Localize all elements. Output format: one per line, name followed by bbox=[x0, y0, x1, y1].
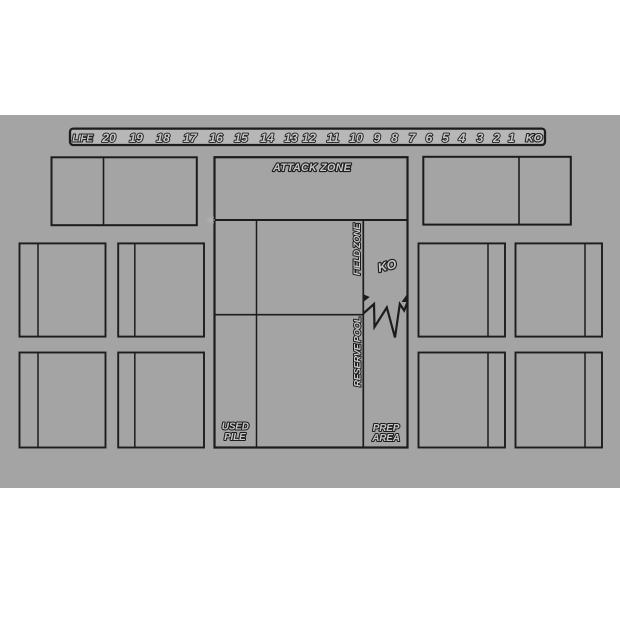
svg-text:11: 11 bbox=[327, 131, 340, 145]
svg-text:PREP: PREP bbox=[373, 423, 400, 434]
svg-text:1: 1 bbox=[508, 131, 515, 145]
svg-text:2: 2 bbox=[492, 131, 500, 145]
svg-text:PILE: PILE bbox=[224, 432, 246, 443]
svg-text:16: 16 bbox=[209, 131, 223, 145]
svg-text:8: 8 bbox=[391, 131, 398, 145]
svg-text:10: 10 bbox=[349, 131, 363, 145]
svg-text:18: 18 bbox=[156, 131, 170, 145]
svg-text:6: 6 bbox=[426, 131, 433, 145]
svg-text:USED: USED bbox=[222, 421, 249, 432]
svg-text:12: 12 bbox=[302, 131, 316, 145]
svg-text:AREA: AREA bbox=[371, 433, 400, 444]
svg-text:15: 15 bbox=[234, 131, 249, 145]
svg-text:LIFE: LIFE bbox=[72, 133, 93, 144]
svg-text:5: 5 bbox=[442, 131, 450, 145]
svg-text:19: 19 bbox=[129, 131, 143, 145]
svg-text:RESERVE POOL: RESERVE POOL bbox=[353, 317, 364, 387]
svg-text:4: 4 bbox=[458, 131, 466, 145]
svg-text:FIELD ZONE: FIELD ZONE bbox=[352, 223, 363, 276]
svg-text:9: 9 bbox=[374, 131, 381, 145]
svg-text:3: 3 bbox=[477, 131, 484, 145]
svg-text:17: 17 bbox=[183, 131, 198, 145]
svg-text:14: 14 bbox=[260, 131, 274, 145]
svg-text:20: 20 bbox=[101, 131, 116, 145]
svg-text:KO: KO bbox=[525, 133, 542, 145]
svg-text:ATTACK ZONE: ATTACK ZONE bbox=[272, 162, 352, 174]
svg-text:13: 13 bbox=[284, 131, 298, 145]
svg-text:7: 7 bbox=[409, 131, 417, 145]
